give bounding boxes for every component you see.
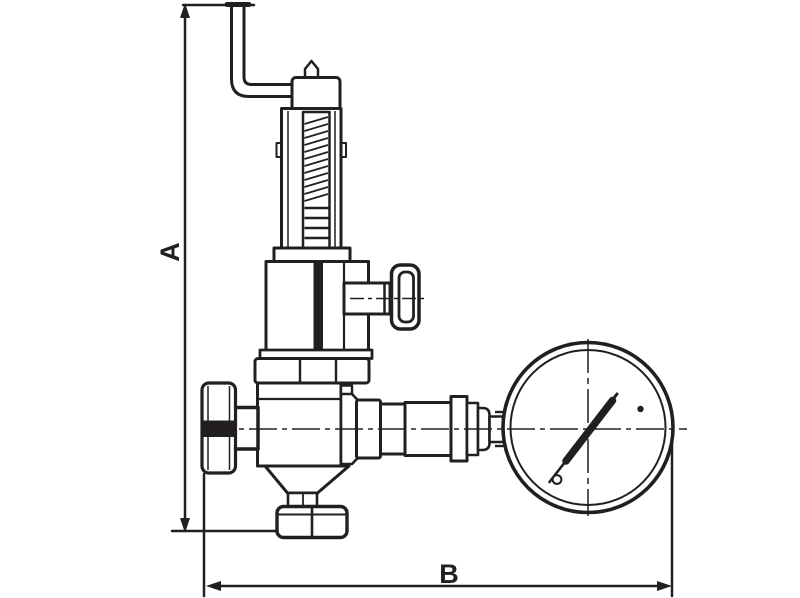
bottom-outlet (265, 466, 349, 538)
cap-nub (305, 61, 318, 78)
handle-bar-inner (399, 272, 414, 322)
spindle (314, 262, 324, 350)
bonnet-cap (292, 61, 340, 111)
chamber-collar (274, 248, 350, 262)
dim-b-arrow-right (657, 581, 672, 591)
dial-dot (637, 406, 643, 412)
bent-pipe (227, 5, 296, 97)
hex-flange (255, 359, 369, 384)
inlet-knob (202, 383, 258, 473)
dim-b-arrow-left (206, 581, 221, 591)
drawing-canvas: A B (0, 0, 800, 598)
valve-technical-drawing: A B (0, 0, 800, 598)
pressure-gauge (503, 339, 673, 516)
dim-b-label: B (439, 559, 459, 589)
dim-a-label: A (155, 242, 185, 262)
bottom-funnel (265, 466, 349, 493)
valve-body (251, 383, 353, 466)
adjusting-screw-tube (277, 109, 347, 261)
needle-tail-ring (553, 475, 562, 484)
